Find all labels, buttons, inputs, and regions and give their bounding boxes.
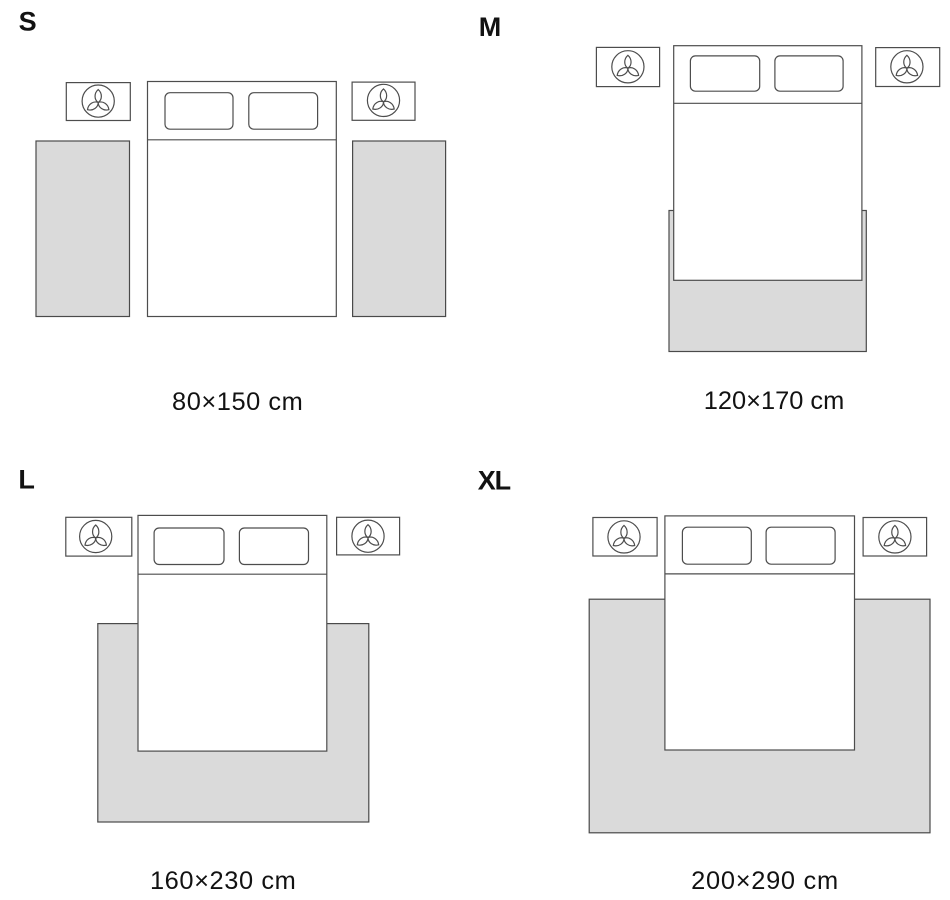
svg-text:L: L (18, 465, 35, 495)
svg-text:160×230 cm: 160×230 cm (150, 867, 296, 895)
svg-text:M: M (479, 12, 502, 42)
svg-text:XL: XL (478, 466, 511, 496)
svg-text:S: S (19, 6, 37, 36)
svg-text:120×170 cm: 120×170 cm (704, 387, 844, 415)
svg-text:80×150 cm: 80×150 cm (172, 388, 303, 416)
svg-text:200×290 cm: 200×290 cm (691, 867, 839, 895)
